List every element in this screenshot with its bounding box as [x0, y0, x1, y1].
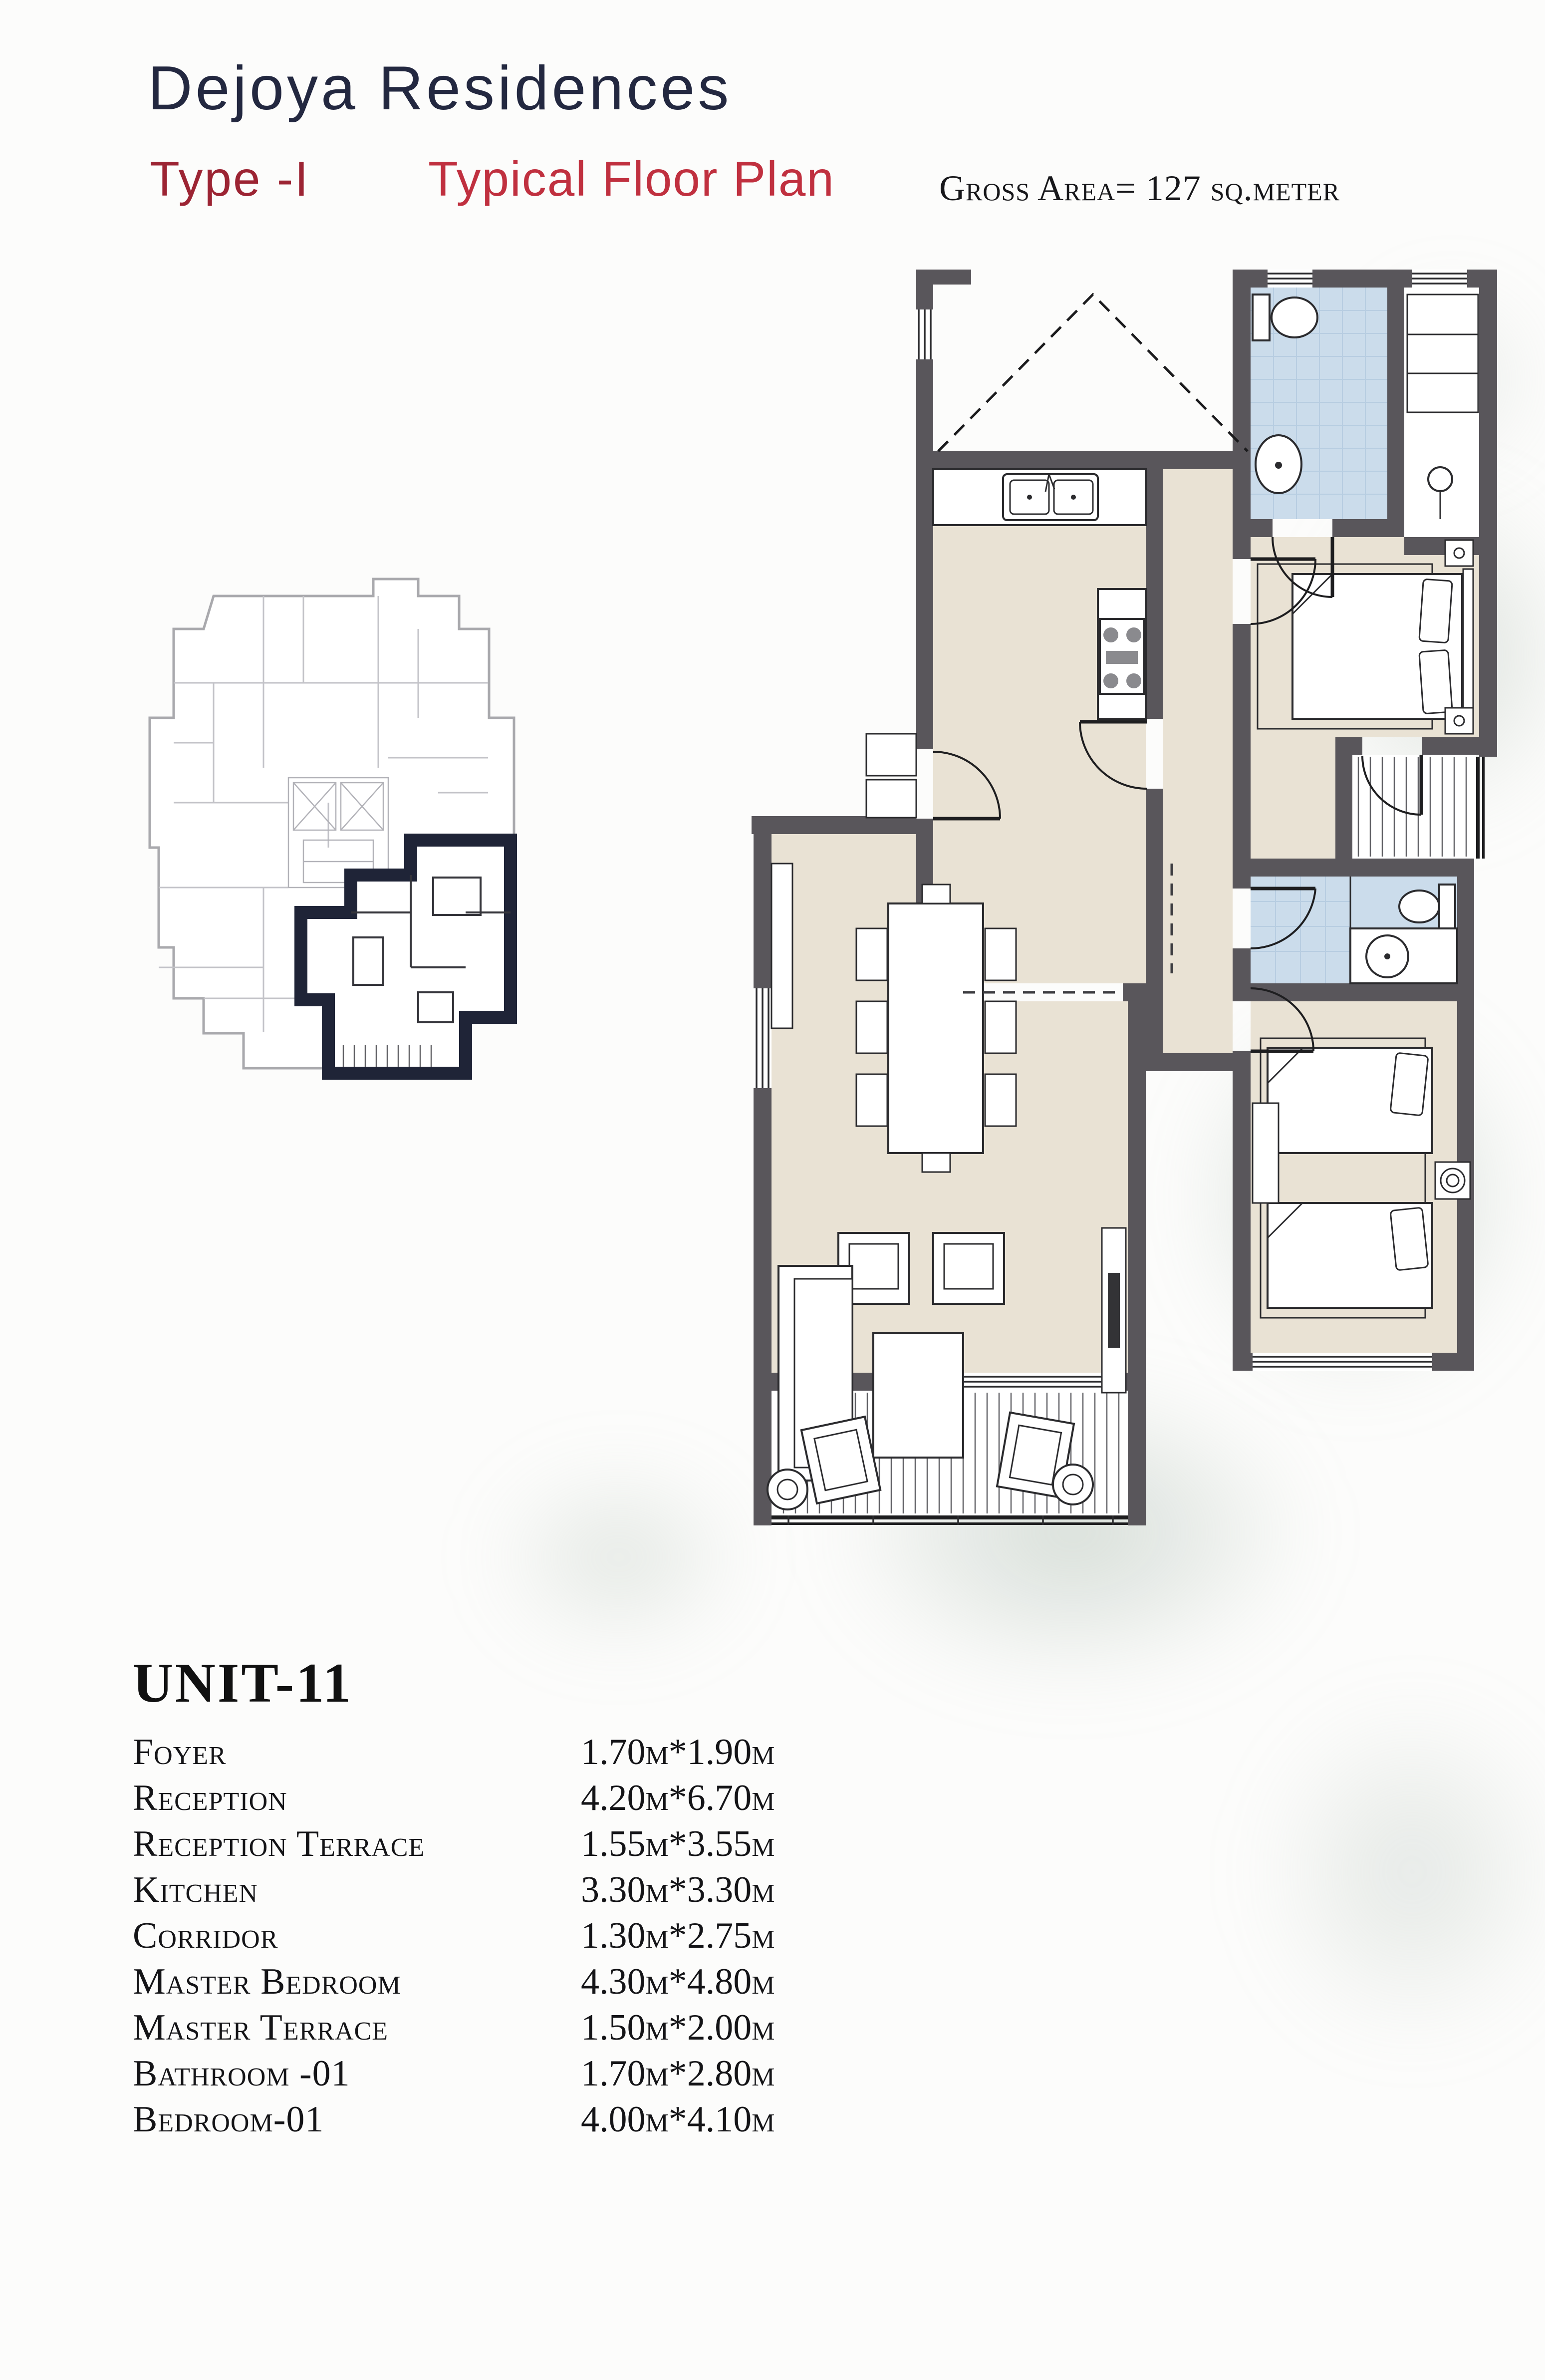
room-dimension: 1.30m*2.75m	[581, 1915, 774, 1957]
room-name: Bedroom-01	[133, 2098, 324, 2141]
reception-window	[754, 988, 772, 1088]
stub-window	[916, 309, 933, 359]
page-title: Dejoya Residences	[148, 53, 732, 124]
room-name: Bathroom -01	[133, 2053, 350, 2095]
stove-icon	[1098, 589, 1146, 719]
room-name: Master Terrace	[133, 2007, 388, 2049]
room-dimension: 4.30m*4.80m	[581, 1961, 774, 2003]
master-terrace-railing	[1476, 757, 1485, 859]
room-dimension: 3.30m*3.30m	[581, 1869, 774, 1911]
toilet-icon	[1253, 295, 1317, 340]
room-dimension: 1.70m*2.80m	[581, 2053, 774, 2095]
room-name: Master Bedroom	[133, 1961, 401, 2003]
watercolor-blob	[1188, 1622, 1545, 2121]
room-name: Reception Terrace	[133, 1823, 425, 1865]
main-floor-plan	[724, 240, 1502, 1547]
utility-window	[1412, 270, 1467, 288]
room-dimension: 1.50m*2.00m	[581, 2007, 774, 2049]
room-row: Bedroom-01 4.00m*4.10m	[133, 2098, 831, 2144]
room-row: Master Terrace 1.50m*2.00m	[133, 2007, 831, 2053]
gross-area-label: Gross Area= 127 sq.meter	[939, 168, 1340, 209]
bedroom-01-window	[1253, 1353, 1432, 1371]
entry-cabinets	[866, 734, 916, 818]
unit-title: UNIT-11	[133, 1651, 353, 1716]
room-dimension-table: Foyer 1.70m*1.90m Reception 4.20m*6.70m …	[133, 1731, 831, 2144]
plan-type-label: Typical Floor Plan	[428, 151, 835, 207]
tv-console	[1102, 1228, 1126, 1393]
room-name: Kitchen	[133, 1869, 258, 1911]
room-row: Bathroom -01 1.70m*2.80m	[133, 2053, 831, 2098]
bathroom-window	[1268, 270, 1312, 288]
room-dimension: 1.70m*1.90m	[581, 1731, 774, 1774]
room-dimension: 4.20m*6.70m	[581, 1777, 774, 1819]
kitchen-counter	[933, 469, 1146, 525]
room-row: Corridor 1.30m*2.75m	[133, 1915, 831, 1961]
room-row: Foyer 1.70m*1.90m	[133, 1731, 831, 1777]
room-row: Reception Terrace 1.55m*3.55m	[133, 1823, 831, 1869]
key-plan-thumbnail	[139, 568, 534, 1099]
room-name: Foyer	[133, 1731, 227, 1774]
room-dimension: 4.00m*4.10m	[581, 2098, 774, 2141]
utility-closet	[1407, 295, 1478, 412]
terrace-railing	[772, 1515, 1128, 1525]
void-dashed-triangle	[938, 295, 1248, 451]
room-name: Reception	[133, 1777, 287, 1819]
room-row: Master Bedroom 4.30m*4.80m	[133, 1961, 831, 2007]
room-dimension: 1.55m*3.55m	[581, 1823, 774, 1865]
room-name: Corridor	[133, 1915, 278, 1957]
corridor-floor	[1163, 469, 1233, 1053]
unit-type-label: Type -I	[150, 151, 310, 207]
room-row: Reception 4.20m*6.70m	[133, 1777, 831, 1823]
room-row: Kitchen 3.30m*3.30m	[133, 1869, 831, 1915]
sink-icon	[1256, 435, 1301, 493]
